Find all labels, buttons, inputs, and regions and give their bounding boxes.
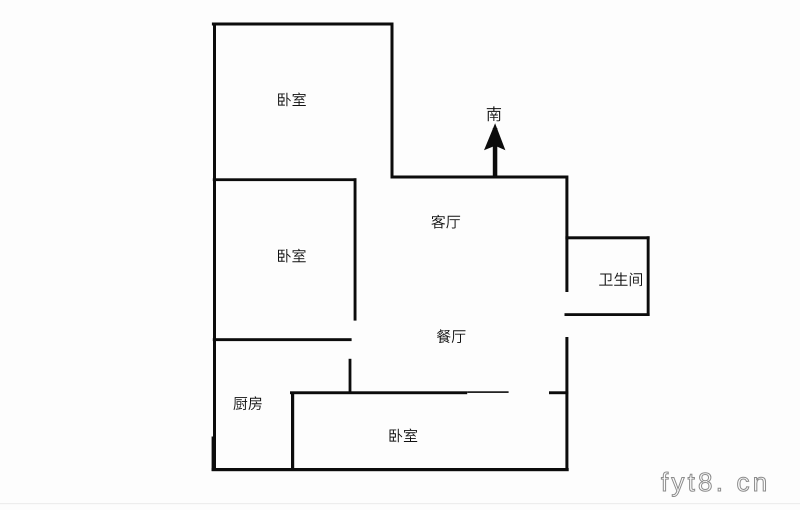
svg-text:fyt8. cn: fyt8. cn xyxy=(661,467,770,497)
